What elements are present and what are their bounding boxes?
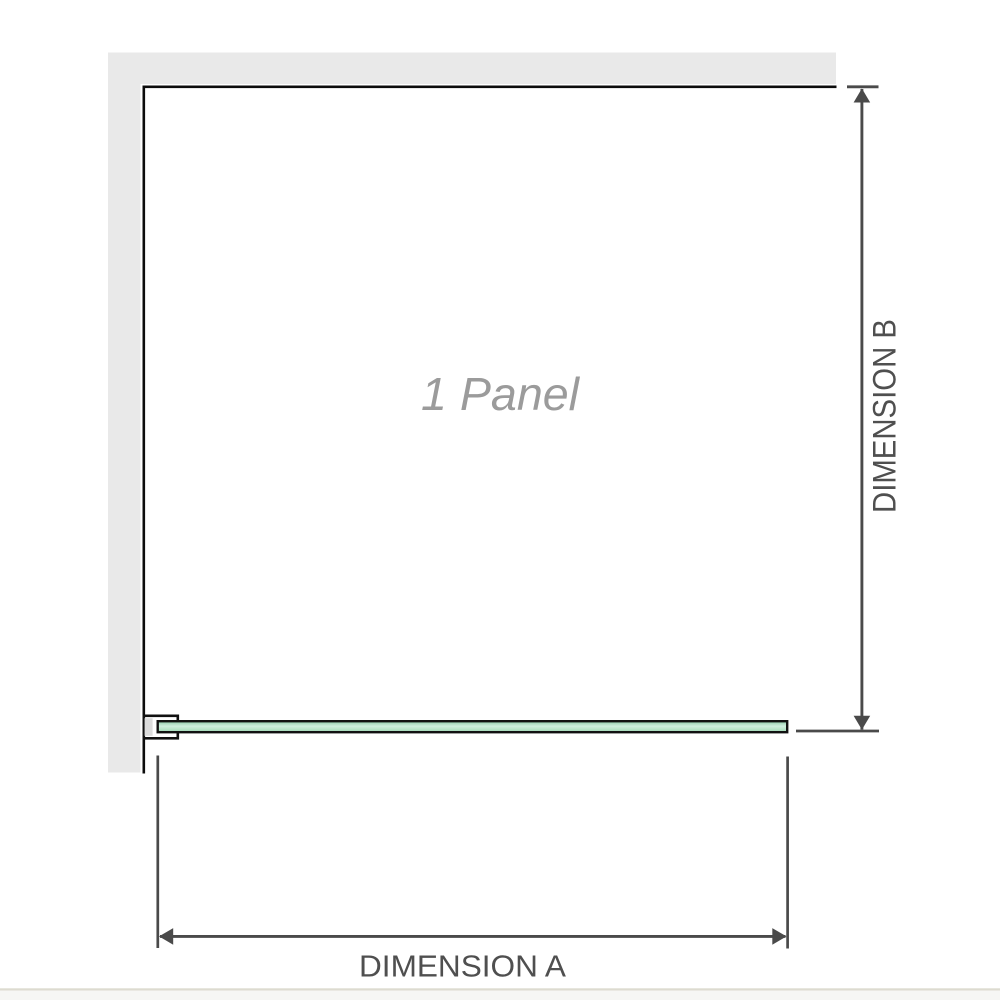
svg-text:DIMENSION A: DIMENSION A — [359, 950, 567, 984]
svg-text:1 Panel: 1 Panel — [421, 368, 581, 420]
svg-text:DIMENSION B: DIMENSION B — [867, 319, 903, 513]
